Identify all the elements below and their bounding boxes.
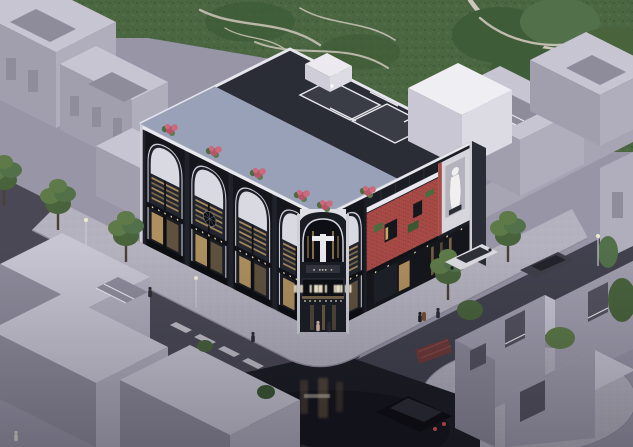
dusk-vignette <box>0 0 633 447</box>
render-canvas: ▪ ▪▪▪ ▪ ▐█▌ ▌██▐ ▐█▌█▌ <box>0 0 633 447</box>
render-stage: ▪ ▪▪▪ ▪ ▐█▌ ▌██▐ ▐█▌█▌ <box>0 0 633 447</box>
